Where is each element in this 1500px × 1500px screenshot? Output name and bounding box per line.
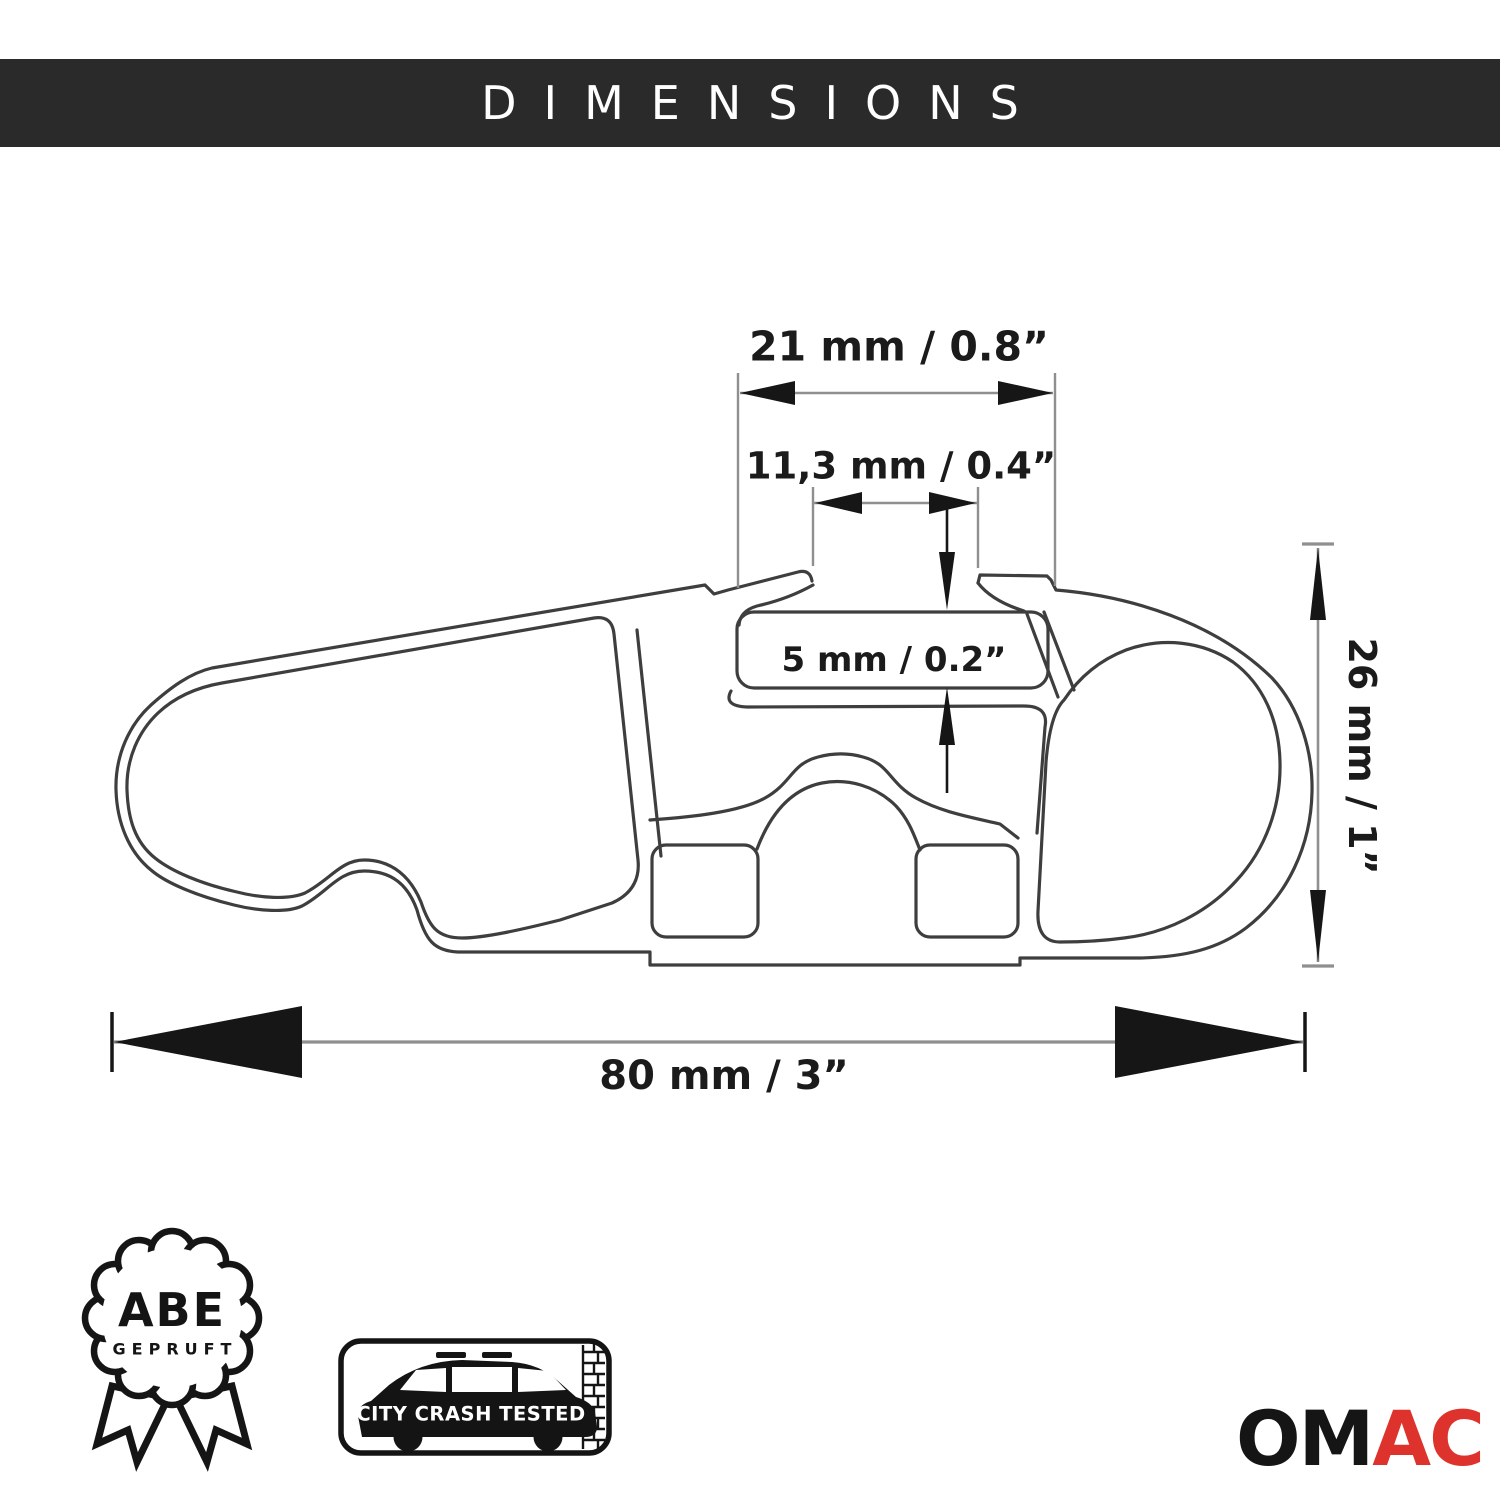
profile-bottom-cell-left: [652, 845, 758, 937]
city-crash-tested-badge: [341, 1341, 609, 1453]
profile-omega-bump-upper: [650, 754, 1018, 838]
dim-label-height: 26 mm / 1”: [1343, 637, 1381, 874]
profile-omega-bump-lower: [757, 782, 920, 850]
profile-left-cell: [127, 618, 638, 938]
profile-lip-underside-left: [739, 585, 813, 625]
logo-part-black: OM: [1236, 1394, 1372, 1483]
abe-badge-subtitle: GEPRUFT: [113, 1340, 238, 1359]
profile-lip-underside-right: [978, 583, 1024, 611]
dimension-lines: [112, 373, 1334, 1078]
profile-right-web: [1027, 612, 1074, 697]
omac-logo: OMAC: [1236, 1401, 1468, 1477]
diagram-canvas: [0, 0, 1500, 1500]
profile-bottom-cell-right: [916, 845, 1018, 937]
dim-label-top-width: 21 mm / 0.8”: [749, 327, 1049, 368]
dim-height: [1302, 544, 1334, 966]
profile-left-web: [637, 630, 661, 856]
abe-badge-title: ABE: [118, 1283, 226, 1337]
dim-label-slot-width: 11,3 mm / 0.4”: [746, 448, 1056, 485]
dim-label-wall-thickness: 5 mm / 0.2”: [781, 643, 1006, 677]
logo-part-red: AC: [1372, 1394, 1483, 1483]
crossbar-profile-drawing: [116, 571, 1312, 965]
profile-outer-outline: [116, 571, 1312, 965]
car-windows: [400, 1367, 566, 1392]
dimensions-infographic: DIMENSIONS: [0, 0, 1500, 1500]
crash-badge-label: CITY CRASH TESTED: [356, 1403, 585, 1426]
dim-label-total-width: 80 mm / 3”: [599, 1056, 849, 1096]
